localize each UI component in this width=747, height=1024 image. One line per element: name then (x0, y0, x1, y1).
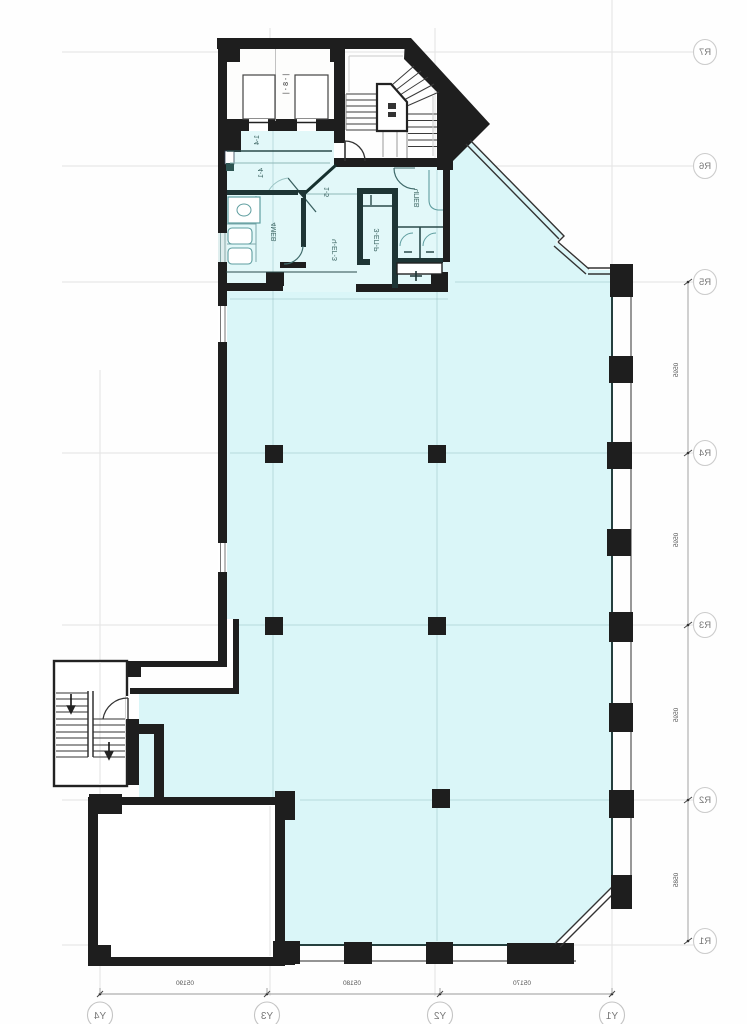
svg-text:R7: R7 (699, 47, 711, 58)
svg-text:Y4: Y4 (93, 1011, 106, 1022)
svg-text:R4: R4 (699, 448, 711, 459)
svg-text:З-ЕП-Р: З-ЕП-Р (374, 228, 381, 252)
svg-text:1-5: 1-5 (324, 187, 331, 197)
svg-text:0595: 0595 (673, 708, 680, 723)
svg-text:Y1: Y1 (605, 1011, 618, 1022)
svg-text:R6: R6 (699, 161, 711, 172)
svg-text:1-4: 1-4 (254, 135, 261, 145)
svg-text:R1: R1 (699, 936, 711, 947)
svg-text:Ч-ЕГ-З: Ч-ЕГ-З (332, 239, 339, 261)
svg-text:|-8-|: |-8-| (283, 74, 290, 96)
svg-text:R2: R2 (699, 795, 711, 806)
svg-text:05190: 05190 (176, 980, 194, 987)
svg-text:4-1: 4-1 (258, 168, 265, 178)
svg-text:0595: 0595 (673, 363, 680, 378)
svg-text:0595: 0595 (673, 533, 680, 548)
svg-text:05170: 05170 (513, 980, 531, 987)
svg-text:4МЕВ: 4МЕВ (271, 222, 278, 241)
svg-text:Y3: Y3 (260, 1011, 273, 1022)
svg-text:0585: 0585 (673, 873, 680, 888)
svg-text:R3: R3 (699, 620, 711, 631)
svg-text:ЧПЕВ: ЧПЕВ (414, 188, 421, 207)
svg-text:05180: 05180 (343, 980, 361, 987)
svg-text:R5: R5 (699, 277, 711, 288)
svg-text:Y2: Y2 (433, 1011, 446, 1022)
